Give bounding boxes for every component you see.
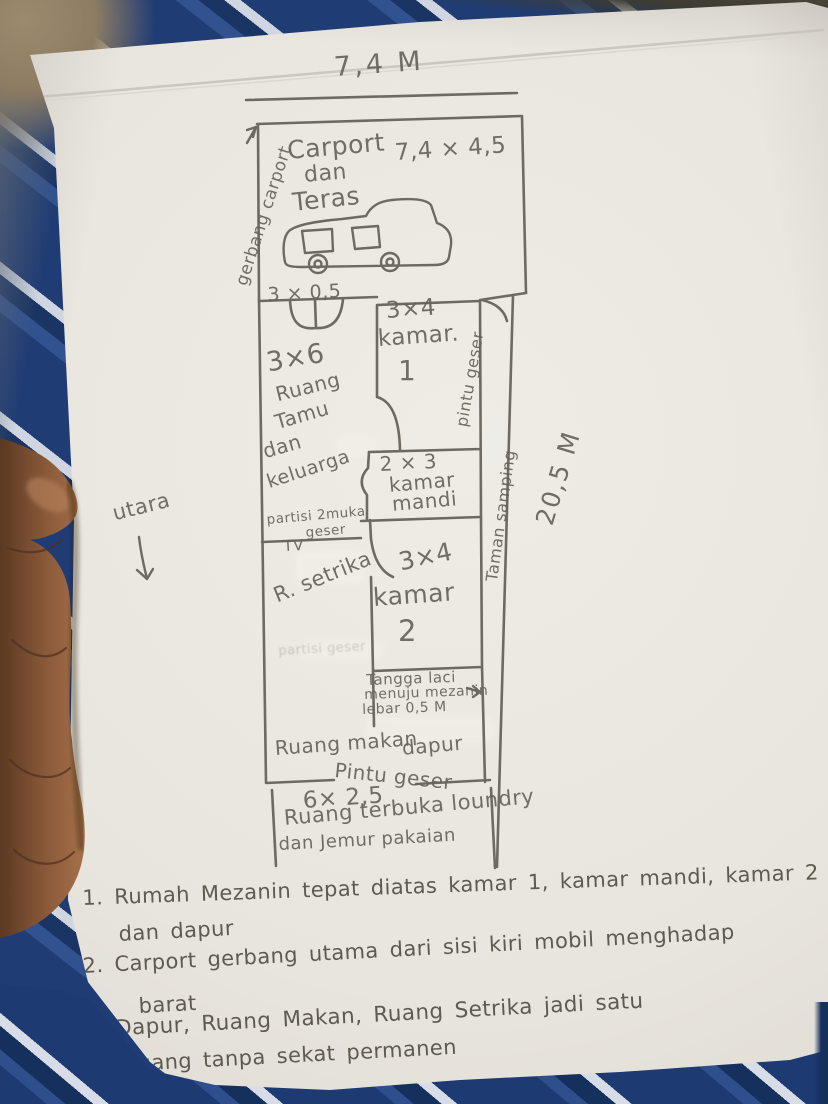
- car-window-left: [302, 229, 333, 253]
- tv-label: TV: [283, 536, 304, 555]
- sketch-paper: 7,4 M gerbang carport Carport dan Teras …: [0, 0, 828, 1104]
- front-door-size-label: 3 × 0,5: [267, 280, 342, 306]
- corner-door-arc: [480, 293, 526, 321]
- car-wheel-left: [309, 255, 327, 273]
- fabric-right-edge: [814, 1002, 828, 1104]
- north-arrow-icon: [137, 537, 153, 579]
- car-wheel-right: [381, 253, 399, 271]
- bedroom1-number-label: 1: [398, 354, 416, 387]
- dimension-line-top: [246, 93, 517, 100]
- bedroom2-number-label: 2: [398, 614, 417, 648]
- photo-of-floorplan-sketch: { "colors": { "paper": "#e9e6e0", "penci…: [0, 0, 828, 1104]
- top-dimension-label: 7,4 M: [333, 46, 425, 83]
- hand-holding-paper: [0, 420, 120, 980]
- car-window-right: [352, 226, 380, 249]
- stairs-label-line3: lebar 0,5 M: [362, 699, 447, 718]
- bedroom1-size-label: 3×4: [385, 295, 437, 324]
- bedroom2-name-label: kamar: [372, 577, 456, 612]
- gate-arrow-icon: [247, 127, 256, 143]
- left-outer-wall: [259, 299, 266, 782]
